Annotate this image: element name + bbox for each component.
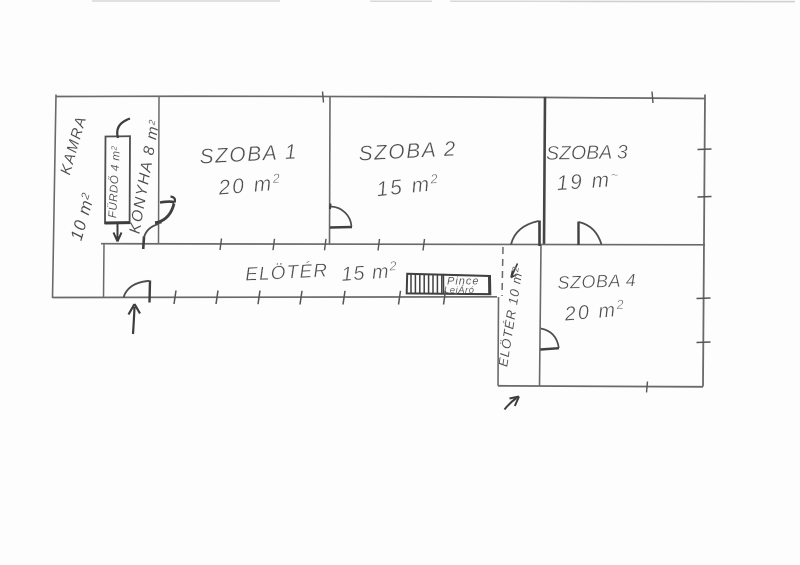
svg-text:ELÖTÉR: ELÖTÉR [245,260,329,285]
svg-text:LejÁró: LejÁró [444,285,475,296]
svg-text:SZOBA 3: SZOBA 3 [546,141,628,164]
svg-text:SZOBA 4: SZOBA 4 [557,270,637,293]
svg-text:19 m~: 19 m~ [556,167,622,195]
